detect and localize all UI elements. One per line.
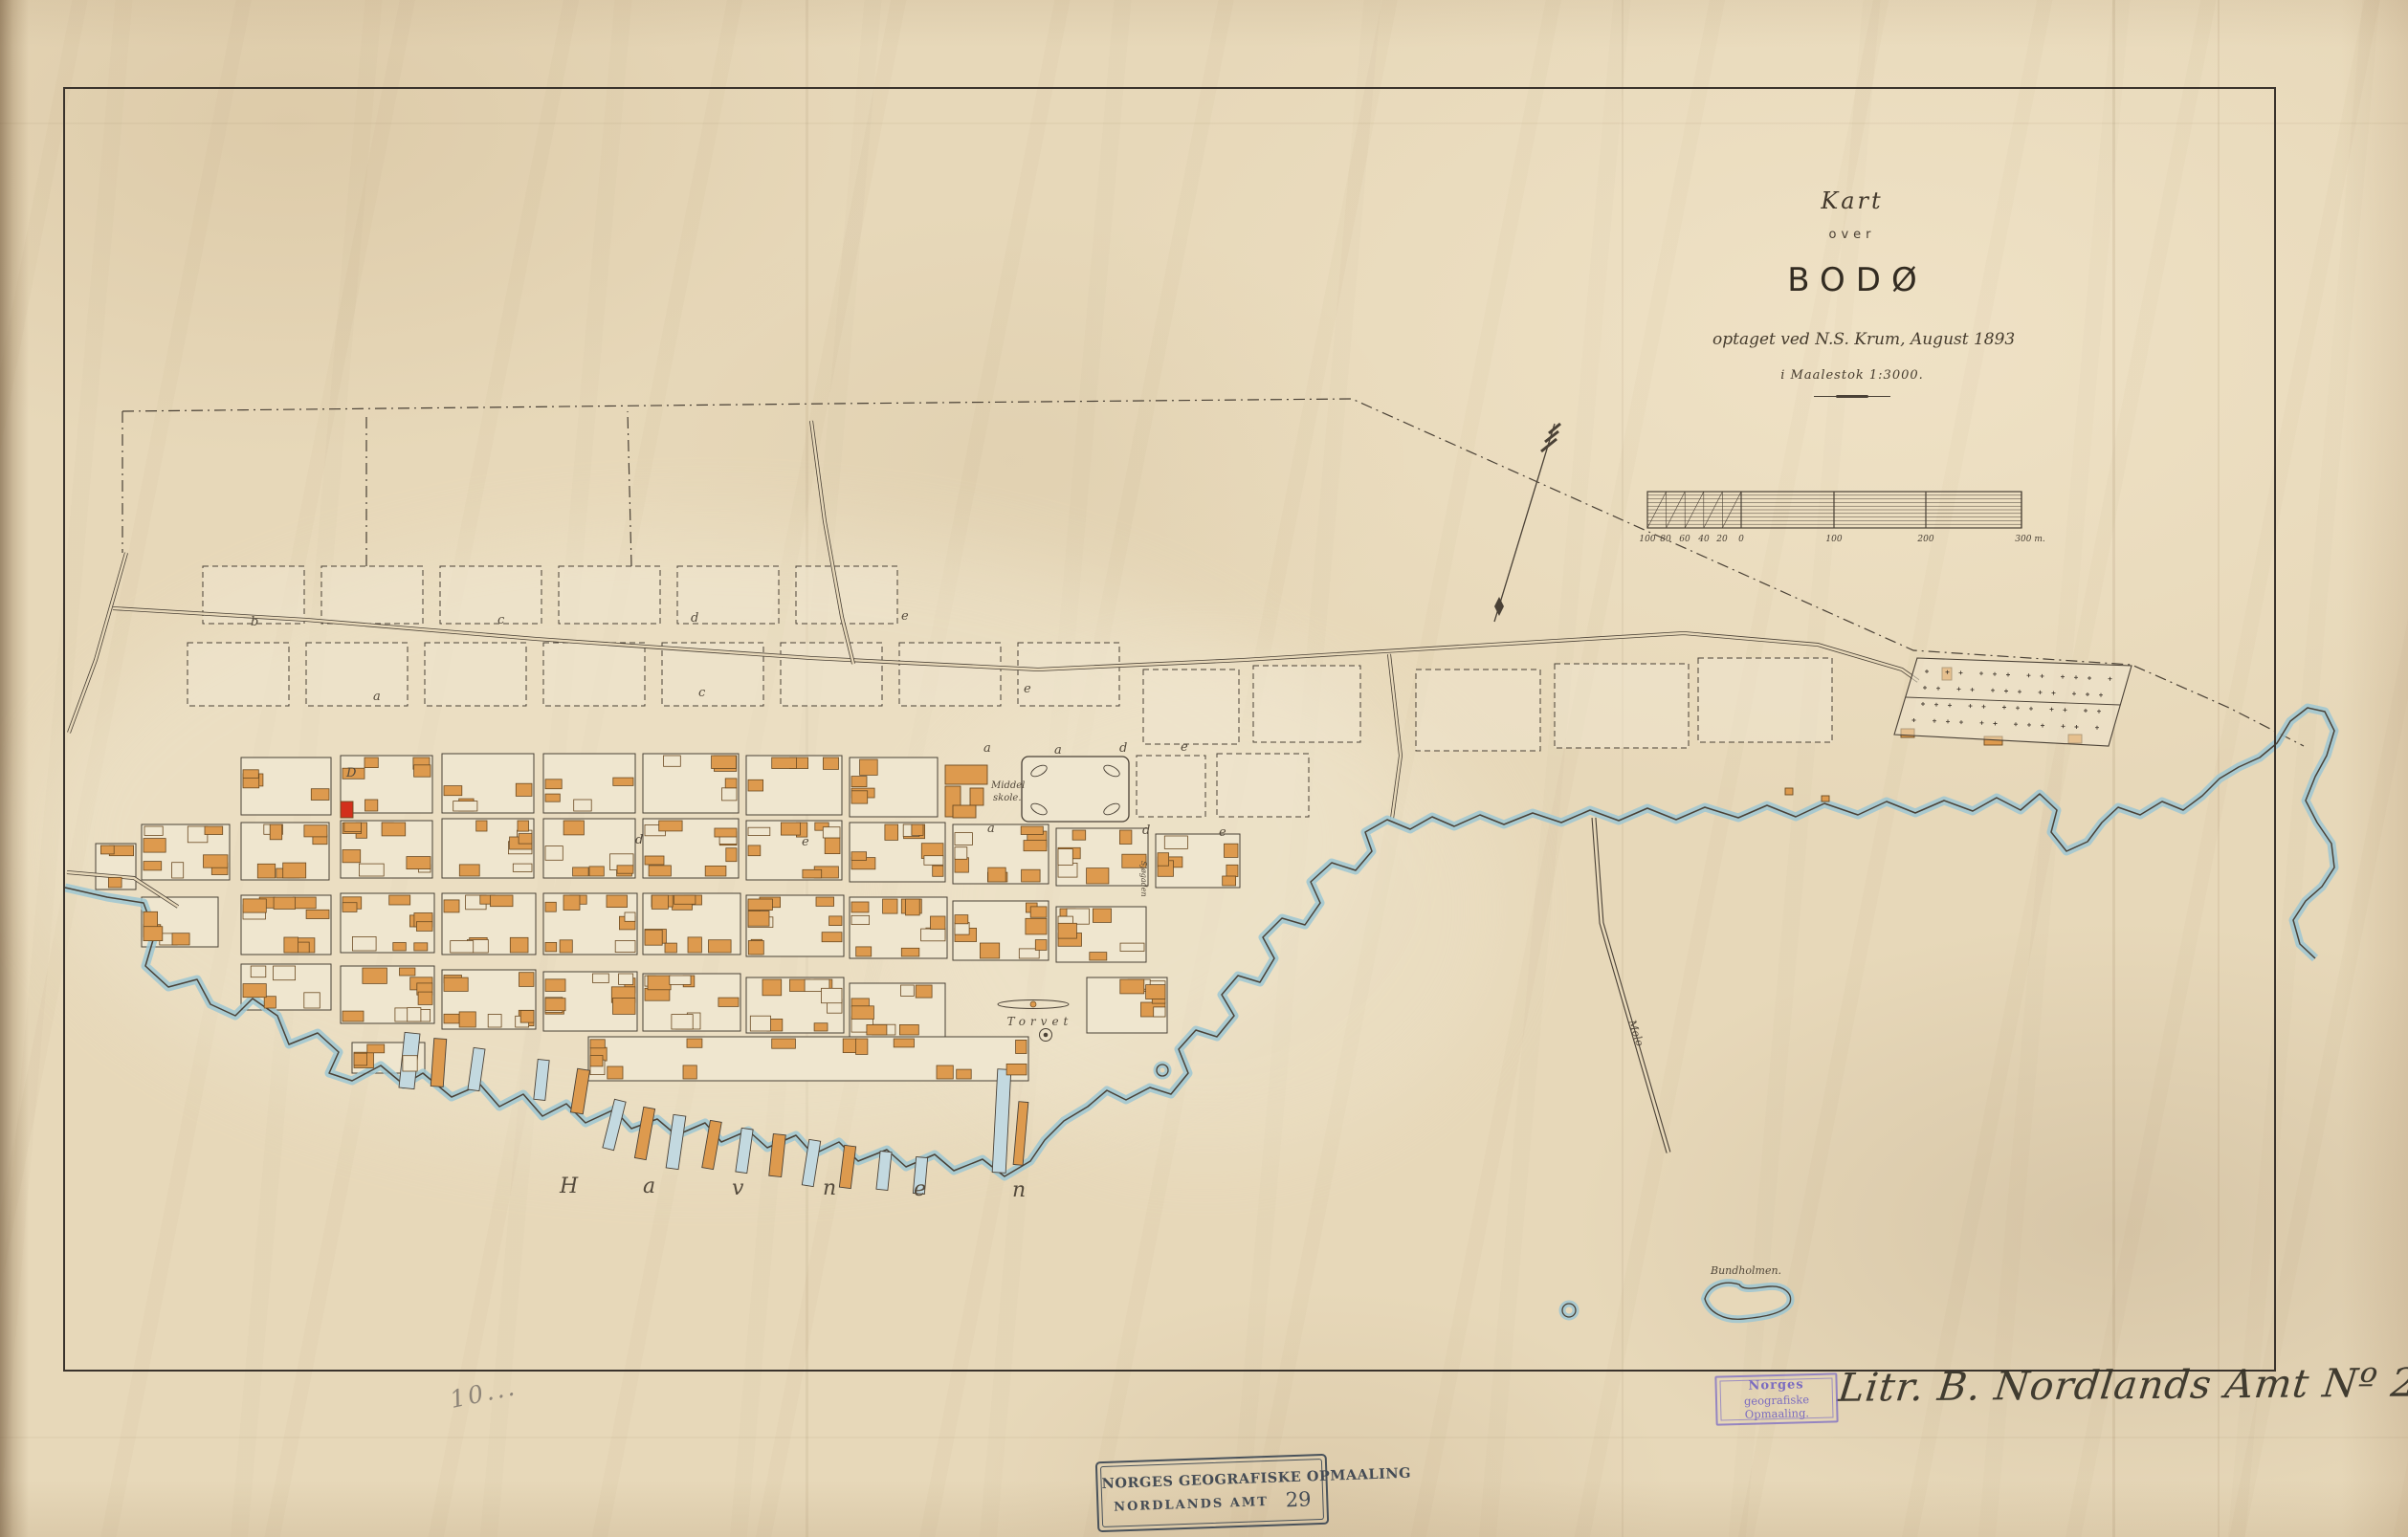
building [955,858,968,872]
building [748,827,770,835]
street-label: Sjøgaden [1139,861,1148,897]
building [459,865,479,876]
building [750,1016,770,1031]
building [563,895,580,911]
building [687,1039,702,1047]
building [243,984,266,998]
havnen-letter: v [732,1176,744,1200]
map-sheet: 100806040200100200300 m.HavnenTorvetMidd… [0,0,2408,1537]
violet-stamp: Norges geografiske Opmaaling. [1714,1372,1838,1425]
building [382,823,406,836]
scale-label: 20 [1715,535,1728,544]
building [851,852,867,861]
building [444,977,468,991]
building [590,1040,605,1048]
building [205,826,223,835]
building [545,979,565,992]
handwritten-annotation: Litr. B. Nordlands Amt Nº 27. [1836,1359,2408,1411]
scale-label: 100 [1825,535,1842,544]
building [144,911,158,928]
molo-label: Molo [1625,1018,1646,1048]
building [1087,868,1109,884]
violet-stamp-line1: Norges [1720,1376,1831,1394]
building [851,777,867,787]
building [816,897,834,906]
building [574,800,592,811]
building [607,895,628,908]
map-title-kart: Kart [1712,187,1992,214]
building [444,786,462,796]
building [921,929,945,941]
building [545,942,557,952]
school-label: skole. [993,793,1022,803]
block-letter: d [691,611,698,626]
scale-label: 40 [1697,535,1710,544]
building [1154,1007,1165,1017]
building [924,856,943,866]
building [851,1006,873,1020]
building [931,916,946,930]
havnen-letter: H [559,1175,579,1198]
building [894,1039,914,1047]
building [617,866,633,873]
building [748,941,763,955]
havnen-letter: n [823,1176,836,1200]
building [518,821,529,831]
archive-stamp-number: 29 [1285,1487,1312,1511]
unbuilt-block [899,643,1001,706]
building [883,899,897,913]
building [718,998,739,1006]
building [1016,1040,1027,1053]
unbuilt-block [796,566,897,624]
building [885,824,898,840]
building [545,902,556,911]
block-letter: c [698,686,706,700]
building [1093,909,1111,922]
building [365,758,378,768]
building [407,857,431,869]
building [304,993,320,1008]
building [988,867,1006,882]
building [274,897,296,910]
building [414,943,428,951]
molo-breakwater [1594,818,1668,1153]
block-letter: e [802,835,809,849]
building [560,940,572,953]
violet-stamp-border: Norges geografiske Opmaaling. [1719,1377,1833,1420]
building [803,869,822,878]
building [715,828,737,837]
map-canvas: 100806040200100200300 m.HavnenTorvetMidd… [0,0,2408,1537]
building [144,826,163,835]
pier [839,1145,855,1188]
building [664,756,681,766]
building [520,1011,534,1023]
building [652,895,668,909]
building [389,895,410,905]
building [772,758,797,769]
building [916,985,932,998]
building [955,915,968,924]
building [748,899,772,911]
title-block: Kart over BODØ optaget ved N.S. Krum, Au… [1712,187,1992,397]
building [672,1015,693,1029]
building [822,933,842,942]
block-letter: a [983,741,991,756]
unbuilt-block [543,643,645,706]
building [444,1014,459,1023]
block-letter: a [373,690,381,704]
building [416,922,432,932]
building [311,789,329,801]
building [1090,953,1107,960]
building [645,930,662,945]
building [172,933,189,945]
building [408,1008,421,1021]
building [613,999,636,1015]
torvet-trough-dot [1030,1001,1036,1007]
building [748,845,761,856]
school-label: Middel [990,780,1025,791]
scale-label: 60 [1679,535,1690,544]
building [519,834,532,845]
building [648,976,671,990]
building [251,966,266,977]
havnen-letter: a [643,1175,655,1198]
building [1072,830,1086,840]
building [1146,985,1165,999]
molo-fill [1594,818,1668,1153]
school-building [953,805,976,818]
building [1021,826,1043,835]
building [851,791,868,803]
building [284,937,298,953]
building [1158,853,1169,867]
building [400,968,415,976]
unbuilt-block [781,643,882,706]
building [955,833,972,845]
building [304,825,327,837]
building [980,943,999,958]
building [709,940,732,953]
building [856,947,872,956]
havnen-letter: e [914,1177,926,1201]
unbuilt-block [1698,658,1832,742]
building [683,1065,696,1079]
building [344,823,362,831]
unbuilt-block [321,566,423,624]
building [545,794,560,801]
unbuilt-block [1018,643,1119,706]
north-arrow-tail-diamond [1494,597,1504,616]
building [100,845,114,854]
building [108,878,122,889]
school-building [970,788,983,805]
unbuilt-block [440,566,541,624]
building [403,1056,417,1071]
building [563,821,584,835]
scale-label: 80 [1660,535,1671,544]
building [1022,869,1041,882]
cemetery-field [1894,658,2132,746]
building [670,976,691,984]
building [359,864,384,876]
building [306,910,329,918]
building [823,827,840,838]
building [649,866,671,876]
building [172,863,184,878]
building [933,866,943,876]
archive-stamp-line2: NORDLANDS AMT29 [1102,1487,1323,1518]
building [243,899,266,912]
building [144,927,163,941]
block-letter: d [635,833,643,847]
building [725,779,737,788]
building [1006,1064,1027,1075]
building [1119,830,1132,845]
building [363,968,387,983]
torvet-label: Torvet [1007,1015,1073,1028]
building [354,1053,367,1065]
building [1226,865,1238,876]
block-letter: c [497,613,505,627]
havnen-letter: n [1012,1178,1026,1202]
building [912,824,923,835]
block-letter: e [1024,682,1031,696]
north-arrow [1494,424,1555,622]
building [665,943,676,953]
scale-label: 100 [1639,535,1655,544]
island-label: Bundholmen. [1710,1264,1781,1277]
unbuilt-block [1555,664,1689,748]
unbuilt-block [425,643,526,706]
building [899,1024,918,1035]
title-divider [1814,396,1890,397]
building [1225,844,1239,857]
building [545,846,563,861]
block-letter: D [345,766,357,780]
building [516,783,532,796]
building [748,911,769,927]
block-letter: d [1119,741,1127,756]
building [1120,943,1144,951]
building [645,988,670,1000]
map-title-scale-note: i Maalestok 1:3000. [1712,368,1992,383]
building [144,839,166,853]
building [342,903,357,912]
block-letter: d [1142,823,1150,838]
building [726,848,737,862]
building [476,821,487,831]
building [867,1024,887,1035]
building [243,770,258,779]
building [856,1039,868,1054]
unbuilt-block [1137,756,1205,817]
building [843,1039,857,1053]
unbuilt-block [1217,754,1309,817]
building [619,974,633,984]
building [851,902,869,912]
scale-label: 300 m. [2015,535,2045,544]
building [781,823,800,835]
building [1164,836,1187,848]
building [722,788,738,801]
building [1035,940,1047,951]
building [365,800,378,811]
building [1785,788,1793,795]
building [625,912,635,921]
building [510,937,528,953]
building [352,936,376,951]
building [293,897,316,909]
building [674,895,696,904]
building [418,992,432,1004]
north-arrow-feathers [1541,424,1560,451]
building [823,758,838,769]
block-letter: a [1054,743,1062,758]
building [772,1039,796,1048]
building [1024,841,1047,851]
archive-stamp-amt: NORDLANDS AMT [1114,1495,1269,1515]
building [613,778,633,785]
unbuilt-block [559,566,660,624]
building [955,923,969,935]
building [748,779,763,791]
building [937,1065,953,1079]
building [901,985,915,996]
building [513,864,532,871]
building [822,988,843,1002]
building [459,1012,475,1027]
map-title-over: over [1712,228,1992,242]
building [444,900,459,912]
unbuilt-block [1143,670,1239,744]
building [144,862,162,870]
building [257,864,275,878]
building [453,801,477,811]
block-letter: a [987,822,995,836]
building [414,765,431,777]
building [573,867,589,876]
building [367,1044,385,1053]
building [901,948,919,956]
building [1058,849,1072,866]
building [1030,907,1047,917]
building [615,941,635,953]
building [860,759,878,775]
fountain-icon [1044,1033,1049,1038]
building [274,966,296,980]
archive-stamp-border: NORGES GEOGRAFISKE OPMAALING NORDLANDS A… [1100,1459,1324,1527]
building [955,847,967,860]
violet-stamp-line2: geografiske Opmaaling. [1721,1392,1833,1421]
building [829,916,842,926]
building [906,899,920,915]
building [1223,876,1236,886]
building [519,973,535,987]
map-title-byline: optaget ved N.S. Krum, August 1893 [1712,330,1992,349]
building [342,850,361,863]
scale-label: 200 [1916,535,1933,544]
building [393,943,407,952]
building [593,974,609,983]
block-letter: e [901,609,909,624]
building [814,1023,828,1031]
unbuilt-block [1416,670,1540,751]
archive-stamp: NORGES GEOGRAFISKE OPMAALING NORDLANDS A… [1095,1454,1329,1532]
building [342,1011,364,1021]
building [1822,796,1829,801]
building [590,1056,603,1066]
building [545,779,562,789]
building [1120,979,1144,994]
unbuilt-block [188,643,289,706]
scale-label: 0 [1738,535,1744,544]
building [762,979,782,996]
building [491,895,514,907]
building [712,756,737,769]
building [204,855,229,867]
building [645,856,664,865]
building [608,1066,623,1079]
building [545,999,565,1011]
school-building [945,765,987,784]
building [264,997,276,1008]
block-letter: e [1181,740,1188,755]
building [659,821,682,831]
map-title-city: BODØ [1712,261,1992,299]
block-letter: b [251,615,258,629]
building [283,863,306,878]
building [957,1069,972,1079]
building [488,1015,501,1028]
building [825,838,840,854]
building [270,824,282,840]
building [1058,923,1076,938]
unbuilt-block [1253,666,1360,742]
building [688,937,701,953]
building [705,866,726,876]
building [851,915,870,924]
building [451,941,474,953]
unbuilt-block [306,643,408,706]
building [589,867,604,876]
red-building [341,801,353,818]
block-letter: e [1219,825,1226,840]
building [1026,918,1047,934]
